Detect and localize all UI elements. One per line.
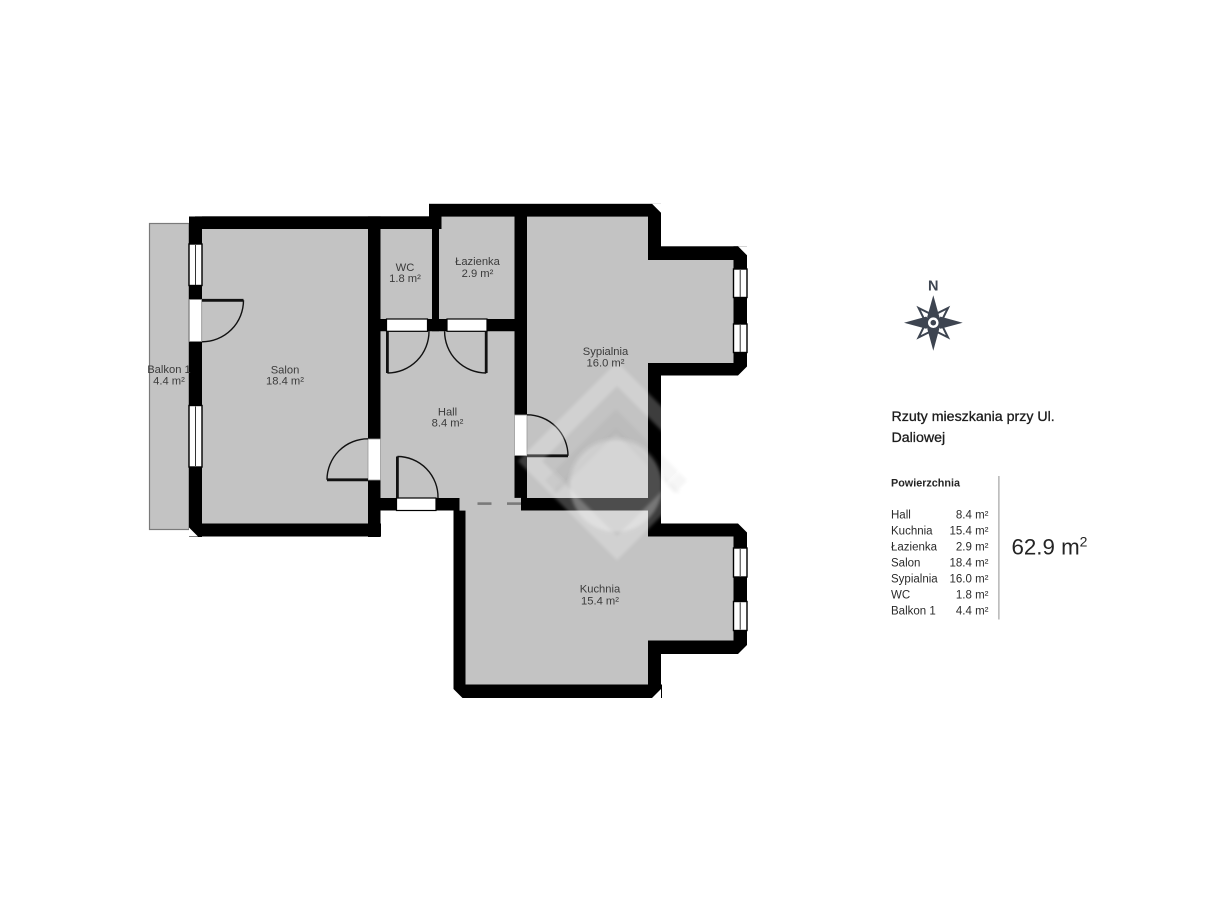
svg-text:1.8 m²: 1.8 m² bbox=[956, 590, 989, 602]
svg-text:8.4 m²: 8.4 m² bbox=[432, 417, 464, 429]
svg-text:1.8 m²: 1.8 m² bbox=[389, 273, 421, 285]
svg-text:Łazienka: Łazienka bbox=[455, 256, 501, 268]
svg-text:15.4 m²: 15.4 m² bbox=[950, 526, 989, 538]
svg-text:Łazienka: Łazienka bbox=[891, 542, 938, 554]
svg-text:Salon: Salon bbox=[271, 364, 300, 376]
svg-text:2.9 m²: 2.9 m² bbox=[462, 268, 494, 280]
svg-text:Balkon 1: Balkon 1 bbox=[147, 364, 191, 376]
svg-text:Kuchnia: Kuchnia bbox=[891, 526, 933, 538]
svg-text:N: N bbox=[928, 279, 938, 295]
svg-text:4.4 m²: 4.4 m² bbox=[956, 606, 989, 618]
svg-text:16.0 m²: 16.0 m² bbox=[950, 574, 989, 586]
svg-text:18.4 m²: 18.4 m² bbox=[266, 376, 304, 388]
svg-text:Sypialnia: Sypialnia bbox=[583, 346, 629, 358]
svg-text:Sypialnia: Sypialnia bbox=[891, 574, 938, 586]
svg-text:Hall: Hall bbox=[891, 510, 911, 522]
svg-text:4.4 m²: 4.4 m² bbox=[153, 375, 185, 387]
svg-text:Daliowej: Daliowej bbox=[892, 430, 946, 446]
svg-text:Salon: Salon bbox=[891, 558, 920, 570]
svg-text:62.9 m2: 62.9 m2 bbox=[1012, 533, 1088, 559]
svg-text:Powierzchnia: Powierzchnia bbox=[891, 478, 961, 490]
svg-text:8.4 m²: 8.4 m² bbox=[956, 510, 989, 522]
svg-text:Rzuty mieszkania przy Ul.: Rzuty mieszkania przy Ul. bbox=[892, 409, 1055, 425]
svg-text:Balkon 1: Balkon 1 bbox=[891, 606, 936, 618]
svg-text:18.4 m²: 18.4 m² bbox=[950, 558, 989, 570]
svg-text:16.0 m²: 16.0 m² bbox=[587, 357, 625, 369]
svg-text:Kuchnia: Kuchnia bbox=[580, 583, 621, 595]
svg-text:WC: WC bbox=[891, 590, 910, 602]
svg-text:2.9 m²: 2.9 m² bbox=[956, 542, 989, 554]
svg-text:15.4 m²: 15.4 m² bbox=[581, 595, 619, 607]
